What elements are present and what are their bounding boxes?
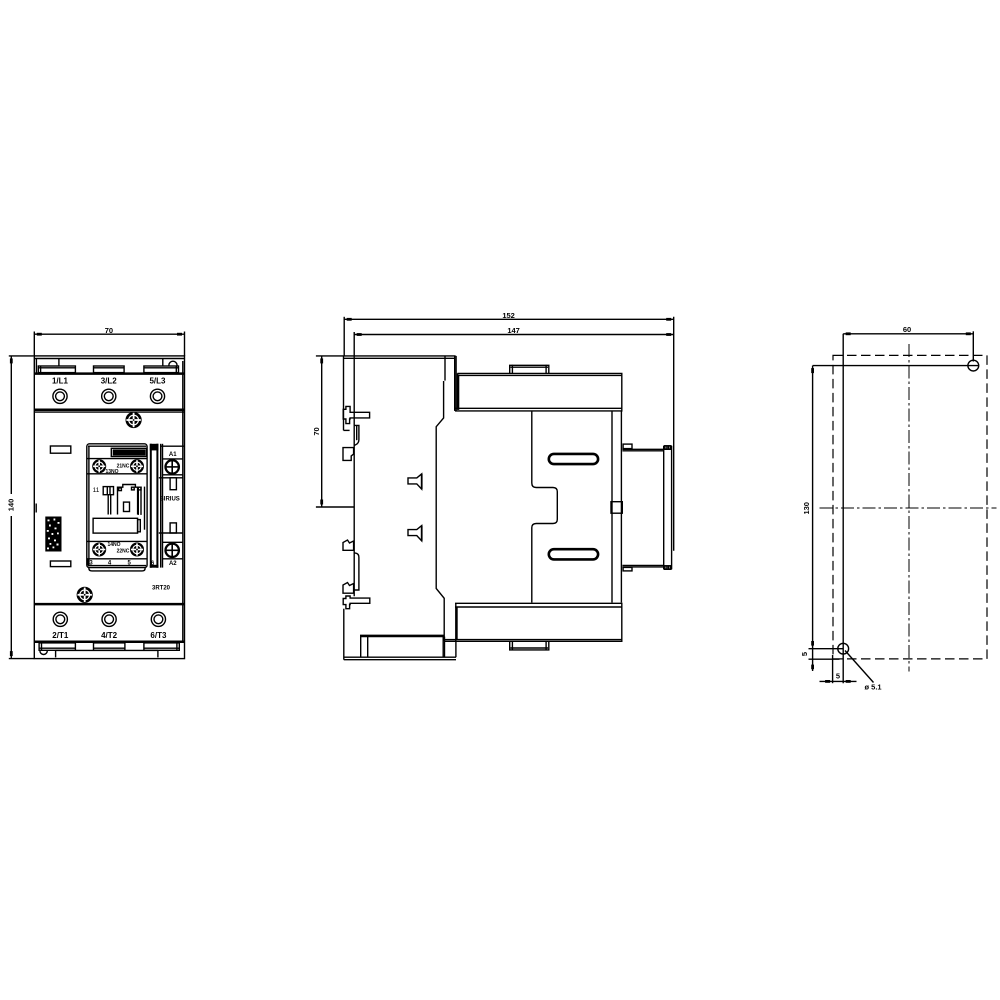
svg-text:ø 5.1: ø 5.1 bbox=[865, 683, 882, 692]
svg-text:130: 130 bbox=[802, 502, 811, 515]
svg-text:21NC: 21NC bbox=[117, 464, 130, 470]
svg-text:14NO: 14NO bbox=[107, 542, 120, 548]
svg-text:5/L3: 5/L3 bbox=[149, 376, 166, 385]
svg-text:5: 5 bbox=[836, 672, 840, 681]
svg-text:3RT19: 3RT19 bbox=[122, 450, 136, 455]
svg-text:60: 60 bbox=[903, 325, 911, 334]
svg-text:11: 11 bbox=[93, 487, 100, 494]
svg-text:A2: A2 bbox=[169, 561, 177, 567]
svg-text:2/T1: 2/T1 bbox=[52, 631, 69, 640]
svg-text:152: 152 bbox=[502, 311, 515, 320]
svg-text:140: 140 bbox=[7, 499, 16, 512]
svg-text:5: 5 bbox=[800, 652, 809, 656]
svg-text:70: 70 bbox=[105, 326, 113, 335]
svg-text:A1: A1 bbox=[169, 452, 177, 458]
svg-text:22NC: 22NC bbox=[117, 549, 130, 555]
svg-text:70: 70 bbox=[312, 427, 321, 435]
svg-text:1/L1: 1/L1 bbox=[52, 376, 69, 385]
svg-text:3RT20: 3RT20 bbox=[152, 585, 171, 591]
svg-text:3/L2: 3/L2 bbox=[101, 376, 118, 385]
svg-text:4/T2: 4/T2 bbox=[101, 631, 118, 640]
svg-text:SIRIUS: SIRIUS bbox=[160, 497, 180, 503]
svg-text:6/T3: 6/T3 bbox=[150, 631, 167, 640]
svg-text:13NO: 13NO bbox=[105, 469, 118, 475]
svg-text:147: 147 bbox=[507, 326, 520, 335]
